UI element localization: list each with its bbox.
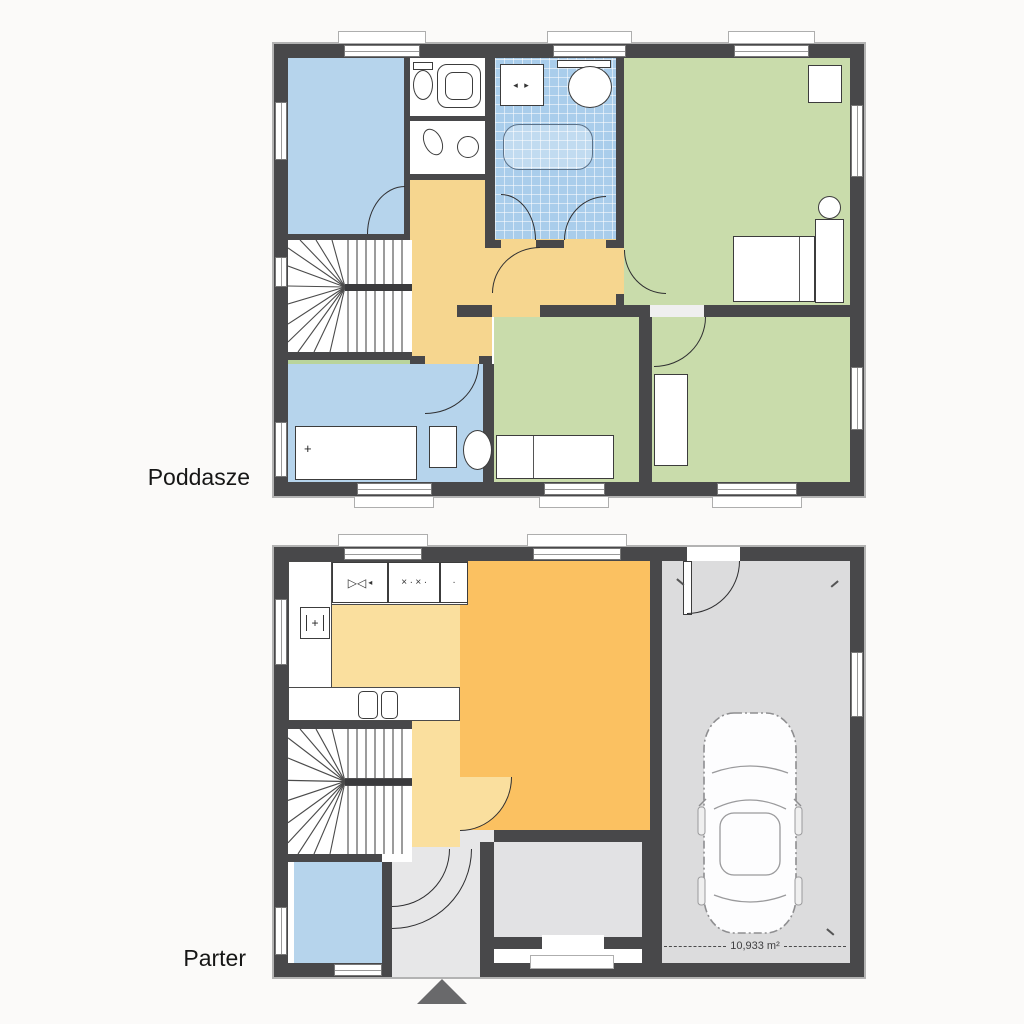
wall bbox=[616, 58, 624, 248]
room-entrance-hall bbox=[412, 847, 480, 862]
wall bbox=[410, 174, 485, 180]
back-door-opening bbox=[542, 935, 604, 951]
bed-icon bbox=[733, 236, 815, 302]
dimension-line bbox=[784, 946, 846, 947]
toilet-tank-icon bbox=[413, 62, 433, 70]
entrance-arrow-icon bbox=[417, 979, 467, 1004]
winder-stairs-icon bbox=[288, 729, 412, 854]
wardrobe-icon bbox=[808, 65, 842, 103]
wall bbox=[616, 294, 624, 305]
room-wc bbox=[294, 862, 382, 963]
stove-icon: × ∙ × ∙ bbox=[388, 562, 440, 603]
window-sill bbox=[338, 31, 426, 44]
room-entrance-hall bbox=[392, 862, 480, 977]
wall bbox=[288, 720, 412, 729]
washer-marks: ◂ ▸ bbox=[501, 65, 543, 105]
winder-stairs-icon bbox=[288, 240, 412, 352]
window-sill bbox=[547, 31, 632, 44]
wall bbox=[540, 305, 650, 317]
room-living-room bbox=[460, 561, 650, 830]
wall bbox=[410, 356, 425, 364]
dimension-line bbox=[664, 946, 726, 947]
wall bbox=[457, 305, 492, 317]
double-sink-icon bbox=[358, 691, 378, 719]
wall bbox=[288, 234, 410, 240]
floor-plans-page: Poddasze bbox=[0, 0, 1024, 1024]
wall bbox=[606, 240, 624, 248]
window bbox=[734, 45, 809, 57]
wall bbox=[639, 317, 652, 482]
wall bbox=[480, 842, 494, 963]
dot-mark: ∙ bbox=[441, 563, 467, 602]
window bbox=[275, 599, 287, 665]
window-sill bbox=[539, 496, 609, 508]
stool-icon bbox=[818, 196, 841, 219]
nightstand-icon bbox=[815, 219, 844, 303]
room-staircase bbox=[288, 729, 412, 854]
room-hall bbox=[412, 721, 460, 847]
double-sink-icon bbox=[381, 691, 398, 719]
window-sill bbox=[712, 496, 802, 508]
window bbox=[334, 964, 382, 976]
door-step bbox=[530, 955, 614, 969]
toilet-icon bbox=[413, 70, 433, 100]
wall bbox=[536, 240, 564, 248]
window bbox=[275, 257, 287, 287]
window-sill bbox=[728, 31, 815, 44]
bathtub-icon bbox=[503, 124, 593, 170]
washbasin-icon bbox=[457, 136, 479, 158]
wall bbox=[410, 116, 485, 121]
room-kitchen bbox=[332, 605, 460, 687]
washbasin-icon bbox=[568, 66, 612, 108]
window bbox=[275, 102, 287, 160]
window bbox=[357, 483, 432, 495]
window bbox=[533, 548, 621, 560]
door-threshold bbox=[492, 305, 540, 317]
window bbox=[344, 45, 420, 57]
garage-area-label: 10,933 m² bbox=[730, 940, 780, 952]
room-hallway-horizontal bbox=[457, 239, 619, 305]
table-icon bbox=[463, 430, 492, 470]
floor-plan-poddasze: ◂ ▸ + bbox=[272, 42, 866, 498]
wall bbox=[404, 58, 410, 234]
window bbox=[717, 483, 797, 495]
floor-label-parter: Parter bbox=[140, 945, 246, 972]
door-threshold bbox=[616, 248, 624, 294]
wall bbox=[485, 240, 501, 248]
wall bbox=[642, 830, 650, 963]
fridge-icon: + bbox=[300, 607, 330, 639]
window bbox=[553, 45, 626, 57]
chair-icon bbox=[429, 426, 457, 468]
desk-plus-mark: + bbox=[304, 441, 312, 456]
car-icon bbox=[698, 709, 802, 937]
wall bbox=[382, 862, 392, 963]
window bbox=[344, 548, 422, 560]
wall bbox=[494, 830, 650, 842]
window bbox=[851, 652, 863, 717]
sink-arrow: ◂ bbox=[368, 578, 372, 587]
bed-icon bbox=[496, 435, 614, 479]
window-sill bbox=[354, 496, 434, 508]
wall bbox=[650, 561, 662, 963]
wall bbox=[288, 352, 412, 360]
garage-door-opening bbox=[687, 547, 740, 561]
door-threshold bbox=[650, 305, 704, 317]
room-staircase bbox=[288, 240, 412, 352]
window-sill bbox=[527, 534, 627, 547]
sink-symbol: ▷◁ bbox=[348, 576, 366, 590]
window bbox=[275, 907, 287, 955]
washing-machine-icon: ◂ ▸ bbox=[500, 64, 544, 106]
entrance-opening bbox=[392, 963, 480, 977]
window bbox=[275, 422, 287, 477]
shower-icon bbox=[437, 64, 481, 108]
wall bbox=[704, 305, 850, 317]
wardrobe-icon bbox=[654, 374, 688, 466]
floor-plan-parter: ▷◁ ◂ × ∙ × ∙ ∙ + bbox=[272, 545, 866, 979]
window bbox=[544, 483, 605, 495]
garage-door-icon bbox=[683, 561, 692, 615]
burner-marks: × ∙ × ∙ bbox=[389, 563, 439, 602]
garage-area-dimension: 10,933 m² bbox=[664, 939, 846, 953]
wall bbox=[479, 356, 492, 364]
wall bbox=[288, 854, 382, 862]
sink-icon: ▷◁ ◂ bbox=[332, 562, 388, 603]
window bbox=[851, 367, 863, 430]
window-sill bbox=[338, 534, 428, 547]
wall bbox=[485, 58, 495, 240]
room-inner-hall bbox=[494, 842, 642, 937]
fridge-plus-mark: + bbox=[311, 616, 318, 630]
floor-label-poddasze: Poddasze bbox=[105, 464, 250, 491]
window bbox=[851, 105, 863, 177]
room-bedroom-top-left bbox=[288, 58, 404, 234]
outer-wall-right bbox=[850, 547, 864, 977]
counter-unit: ∙ bbox=[440, 562, 468, 603]
desk-icon: + bbox=[295, 426, 417, 480]
